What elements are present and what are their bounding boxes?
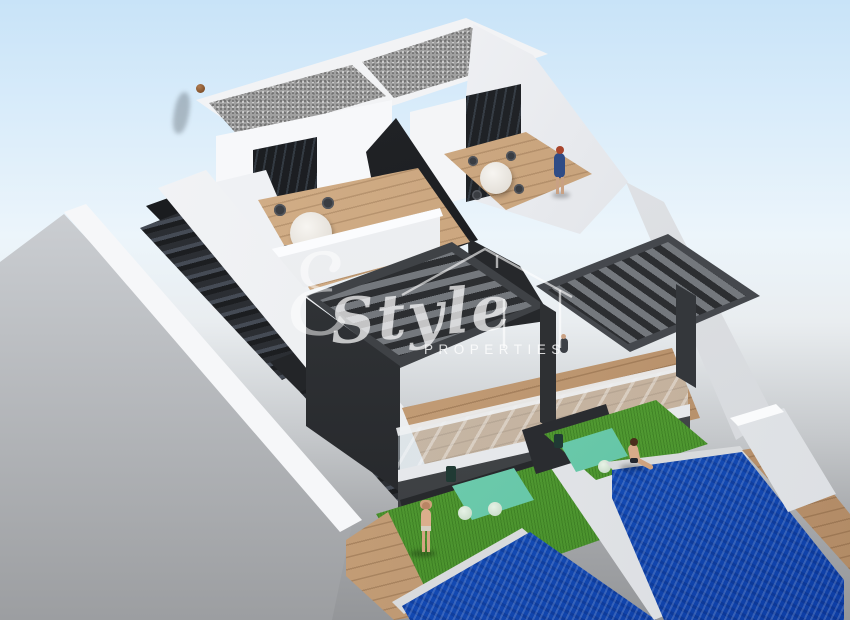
- patio-table-right: [480, 162, 512, 194]
- patio-chair: [514, 184, 524, 194]
- decorative-ball: [196, 84, 205, 93]
- person-standing-terrace: [552, 146, 568, 200]
- person-sunbathing-left: [416, 498, 436, 560]
- person-sitting-pool: [622, 438, 656, 480]
- person-on-balcony: [560, 334, 568, 353]
- patio-chair: [472, 190, 482, 200]
- patio-chair: [322, 197, 334, 209]
- planter: [554, 434, 563, 448]
- planter: [446, 466, 456, 482]
- garden-pouf: [488, 502, 502, 516]
- patio-chair: [274, 204, 286, 216]
- patio-chair: [506, 151, 516, 161]
- garden-pouf: [458, 506, 472, 520]
- person-shadow: [170, 91, 192, 135]
- patio-chair: [468, 156, 478, 166]
- render-scene: ℰ Style PROPERTIES: [0, 0, 850, 620]
